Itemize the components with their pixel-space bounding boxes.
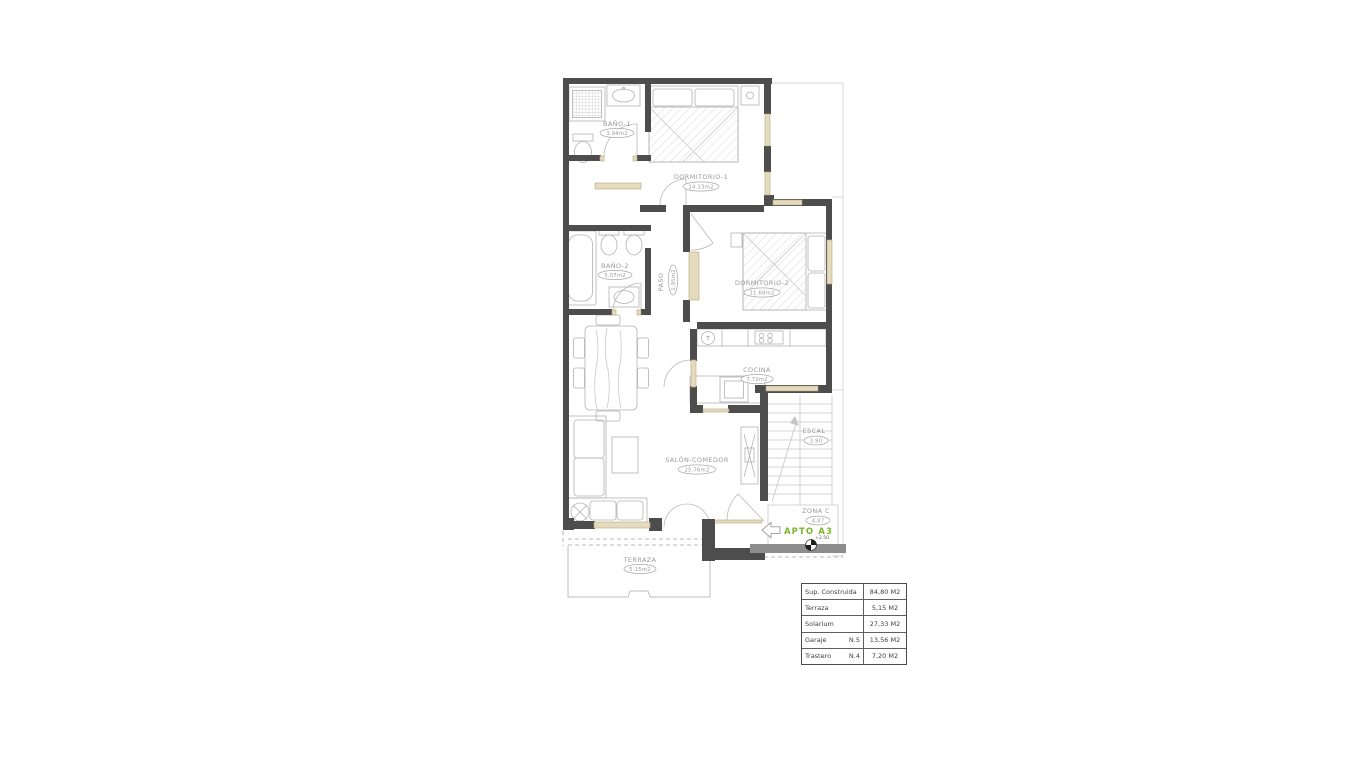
bidet-icon bbox=[599, 229, 619, 255]
summary-label-text: Trastero bbox=[805, 652, 831, 660]
room-label-dormitorio1: DORMITORIO-1 14.13m2 bbox=[674, 173, 728, 191]
room-label-bano2: BAÑO-2 5.07m2 bbox=[598, 261, 632, 280]
summary-label-text: Terraza bbox=[805, 604, 828, 612]
summary-label: Garaje N.5 bbox=[802, 633, 864, 648]
svg-text:25.76m2: 25.76m2 bbox=[684, 468, 709, 474]
neighbor-wall bbox=[750, 544, 846, 553]
svg-text:PASO: PASO bbox=[657, 273, 665, 292]
svg-text:4.87: 4.87 bbox=[812, 519, 825, 525]
summary-label: Terraza bbox=[802, 600, 864, 615]
svg-text:1.95m2: 1.95m2 bbox=[671, 269, 677, 291]
svg-text:11.68m2: 11.68m2 bbox=[749, 291, 774, 297]
svg-text:TERRAZA: TERRAZA bbox=[623, 556, 657, 564]
room-label-bano1: BAÑO-1 3.94m2 bbox=[600, 119, 634, 138]
summary-label: Sup. Construida bbox=[802, 584, 864, 599]
washbasin-icon bbox=[609, 287, 639, 307]
dining-table-icon bbox=[574, 315, 649, 421]
summary-row-garaje: Garaje N.5 13,56 M2 bbox=[802, 632, 906, 648]
summary-row-sup-construida: Sup. Construida 84,80 M2 bbox=[802, 584, 906, 599]
svg-text:3.90: 3.90 bbox=[810, 439, 823, 445]
level-value: +2.50 bbox=[815, 535, 829, 541]
svg-text:7.72m2: 7.72m2 bbox=[746, 377, 768, 383]
room-label-cocina: COCINA 7.72m2 bbox=[741, 366, 773, 384]
summary-value: 27,33 M2 bbox=[864, 616, 906, 631]
room-label-zona-comun: ZONA C 4.87 bbox=[802, 507, 830, 525]
entrance-arrow-icon bbox=[762, 523, 780, 538]
double-bed-icon bbox=[743, 233, 828, 310]
summary-unit-text: N.4 bbox=[849, 652, 863, 660]
svg-text:BAÑO-1: BAÑO-1 bbox=[603, 119, 631, 128]
double-bed-icon bbox=[649, 86, 738, 162]
svg-text:5.15m2: 5.15m2 bbox=[629, 567, 651, 573]
svg-text:DORMITORIO-2: DORMITORIO-2 bbox=[735, 279, 789, 287]
bathtub-icon bbox=[565, 231, 596, 305]
boiler-label: T bbox=[705, 336, 710, 343]
svg-text:ESCAL: ESCAL bbox=[803, 427, 826, 435]
tv-unit-icon bbox=[741, 427, 758, 484]
toilet-icon bbox=[624, 229, 644, 255]
shower-icon bbox=[569, 87, 605, 121]
svg-text:SALÓN-COMEDOR: SALÓN-COMEDOR bbox=[665, 455, 729, 464]
summary-unit-text: N.5 bbox=[849, 636, 863, 644]
svg-text:14.13m2: 14.13m2 bbox=[688, 185, 713, 191]
svg-text:5.07m2: 5.07m2 bbox=[604, 273, 626, 279]
summary-value: 13,56 M2 bbox=[864, 633, 906, 648]
summary-row-trastero: Trastero N.4 7,20 M2 bbox=[802, 648, 906, 664]
room-label-escalera: ESCAL 3.90 bbox=[803, 427, 828, 445]
room-label-paso: PASO 1.95m2 bbox=[657, 265, 678, 295]
summary-label-text: Garaje bbox=[805, 636, 826, 644]
svg-text:BAÑO-2: BAÑO-2 bbox=[601, 261, 629, 270]
sink-icon bbox=[607, 85, 640, 106]
summary-value: 5,15 M2 bbox=[864, 600, 906, 615]
summary-label-text: Sup. Construida bbox=[805, 588, 857, 596]
summary-label: Solarium bbox=[802, 616, 864, 631]
nightstand-icon bbox=[741, 86, 759, 105]
summary-value: 7,20 M2 bbox=[864, 649, 906, 664]
coffee-table-icon bbox=[612, 437, 638, 473]
summary-label-text: Solarium bbox=[805, 620, 834, 628]
room-label-salon-comedor: SALÓN-COMEDOR 25.76m2 bbox=[665, 455, 729, 474]
nightstand-icon bbox=[731, 233, 742, 247]
area-summary-table: Sup. Construida 84,80 M2 Terraza 5,15 M2… bbox=[801, 583, 907, 665]
svg-text:ZONA C: ZONA C bbox=[802, 507, 830, 515]
summary-row-solarium: Solarium 27,33 M2 bbox=[802, 615, 906, 631]
summary-value: 84,80 M2 bbox=[864, 584, 906, 599]
summary-label: Trastero N.4 bbox=[802, 649, 864, 664]
sofa-icon bbox=[566, 416, 647, 524]
floorplan-drawing: BAÑO-1 3.94m2 DORMITORIO-1 14.13m2 BAÑO-… bbox=[0, 0, 1366, 768]
svg-text:3.94m2: 3.94m2 bbox=[606, 131, 628, 137]
room-label-terraza: TERRAZA 5.15m2 bbox=[623, 556, 657, 574]
svg-text:COCINA: COCINA bbox=[743, 366, 771, 374]
summary-row-terraza: Terraza 5,15 M2 bbox=[802, 599, 906, 615]
kitchen-counter bbox=[697, 329, 826, 346]
floorplan-page: BAÑO-1 3.94m2 DORMITORIO-1 14.13m2 BAÑO-… bbox=[0, 0, 1366, 768]
svg-text:DORMITORIO-1: DORMITORIO-1 bbox=[674, 173, 728, 181]
